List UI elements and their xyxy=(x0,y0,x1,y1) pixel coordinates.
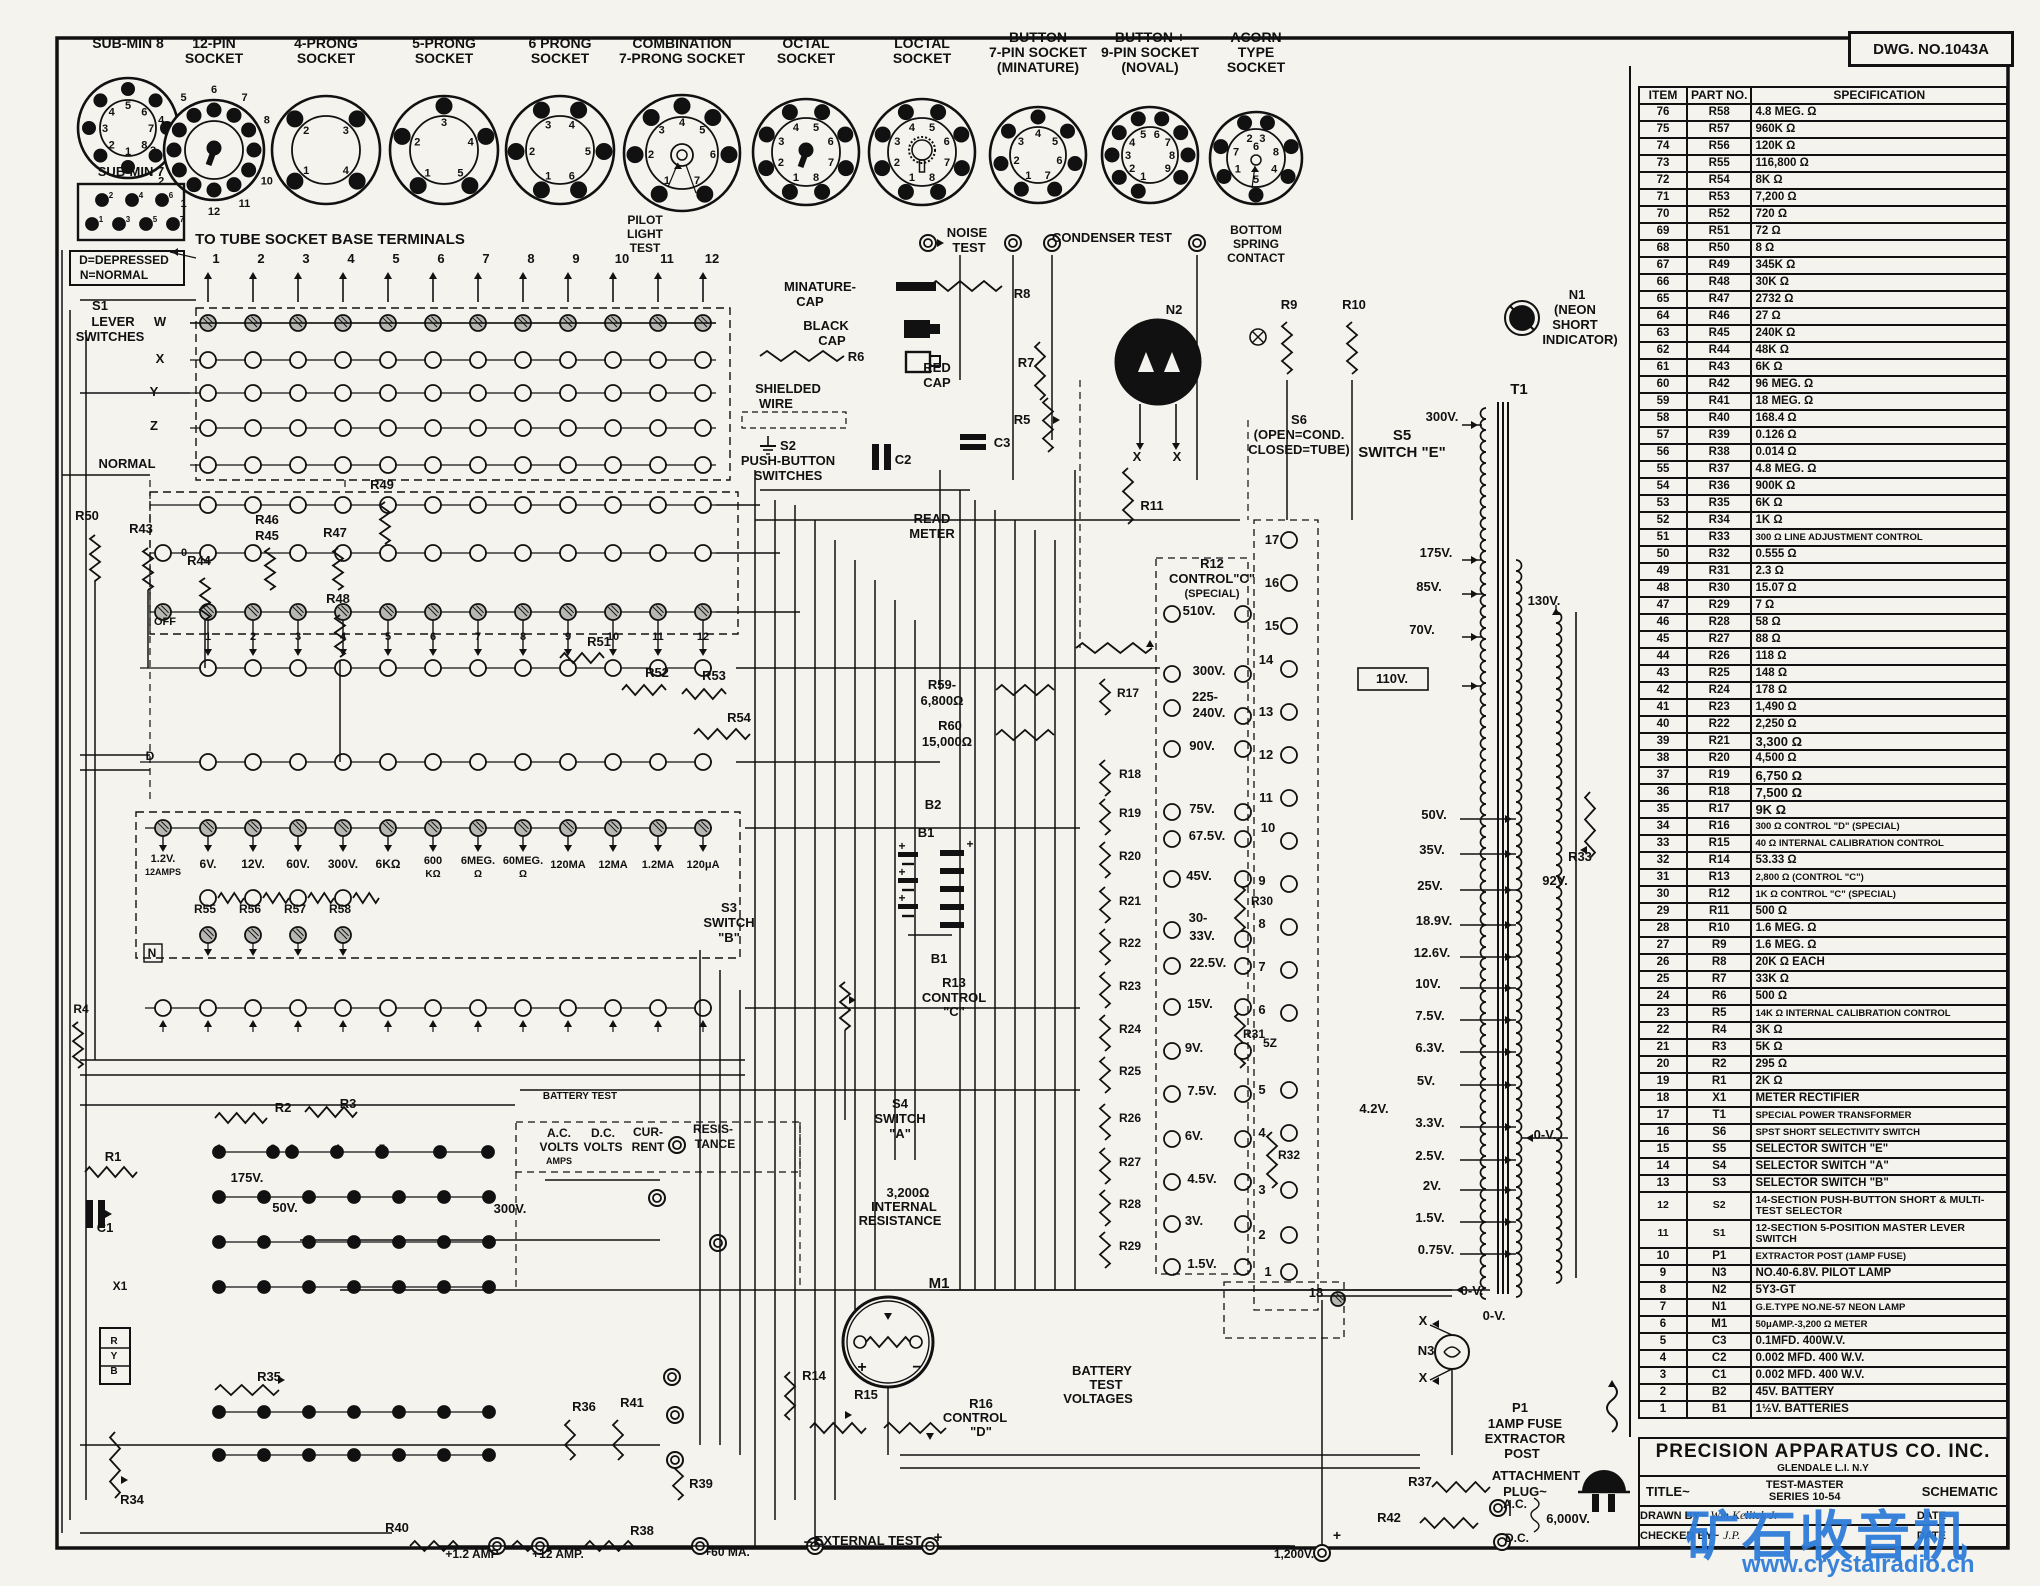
part-part: R49 xyxy=(1687,257,1751,274)
schematic-label: BOTTOM xyxy=(1230,223,1282,237)
schematic-label: S2 xyxy=(780,438,796,453)
part-item: 36 xyxy=(1639,784,1687,801)
part-spec: 48K Ω xyxy=(1751,342,2007,359)
schematic-label: + xyxy=(898,891,905,905)
part-part: R54 xyxy=(1687,172,1751,189)
schematic-label: 90V. xyxy=(1189,738,1215,753)
part-item: 12 xyxy=(1639,1192,1687,1220)
schematic-label: 8 xyxy=(527,251,534,266)
part-part: R8 xyxy=(1687,954,1751,971)
parts-table-row: 45R2788 Ω xyxy=(1639,631,2007,648)
schematic-label: SOCKET xyxy=(777,50,836,66)
parts-table: ITEM PART NO. SPECIFICATION 76R584.8 MEG… xyxy=(1638,86,2008,1419)
schematic-label: 10 xyxy=(615,251,629,266)
part-spec: 0.1MFD. 400W.V. xyxy=(1751,1333,2007,1350)
schematic-label: R14 xyxy=(802,1368,827,1383)
schematic-label: 8 xyxy=(1169,150,1175,162)
part-item: 9 xyxy=(1639,1265,1687,1282)
schematic-label: 6,000V. xyxy=(1546,1511,1590,1526)
parts-table-row: 18X1METER RECTIFIER xyxy=(1639,1090,2007,1107)
part-part: R28 xyxy=(1687,614,1751,631)
schematic-label: SOCKET xyxy=(1227,59,1286,75)
schematic-label: 15 xyxy=(1265,618,1279,633)
schematic-label: R12 xyxy=(1200,556,1224,571)
part-item: 7 xyxy=(1639,1299,1687,1316)
schematic-label: 5 xyxy=(153,215,158,224)
part-item: 72 xyxy=(1639,172,1687,189)
schematic-label: RESISTANCE xyxy=(859,1213,942,1228)
schematic-label: R18 xyxy=(1119,767,1141,781)
schematic-label: SUB-MIN 8 xyxy=(92,35,164,51)
part-part: R35 xyxy=(1687,495,1751,512)
part-spec: 0.002 MFD. 400 W.V. xyxy=(1751,1350,2007,1367)
schematic-label: 92V. xyxy=(1542,873,1568,888)
parts-table-row: 1B11½V. BATTERIES xyxy=(1639,1401,2007,1418)
schematic-label: 7 xyxy=(944,157,950,169)
schematic-label: 16 xyxy=(1265,575,1279,590)
schematic-label: 3 xyxy=(302,251,309,266)
part-part: X1 xyxy=(1687,1090,1751,1107)
parts-table-row: 40R222,250 Ω xyxy=(1639,716,2007,733)
schematic-label: R35 xyxy=(257,1369,281,1384)
schematic-label: BUTTON xyxy=(1009,29,1067,45)
schematic-label: 5-PRONG xyxy=(412,35,476,51)
schematic-label: 8 xyxy=(1258,916,1265,931)
schematic-label: R2 xyxy=(275,1100,292,1115)
schematic-label: CONDENSER TEST xyxy=(1052,230,1172,245)
part-item: 18 xyxy=(1639,1090,1687,1107)
schematic-label: CAP xyxy=(923,375,951,390)
part-item: 34 xyxy=(1639,818,1687,835)
part-item: 4 xyxy=(1639,1350,1687,1367)
part-part: R10 xyxy=(1687,920,1751,937)
part-spec: 53.33 Ω xyxy=(1751,852,2007,869)
part-part: R42 xyxy=(1687,376,1751,393)
part-part: R13 xyxy=(1687,869,1751,886)
schematic-label: 3 xyxy=(1125,150,1131,162)
schematic-label: 6 xyxy=(437,1144,444,1158)
schematic-label: R26 xyxy=(1119,1111,1141,1125)
part-part: N1 xyxy=(1687,1299,1751,1316)
part-item: 62 xyxy=(1639,342,1687,359)
schematic-label: COMBINATION xyxy=(632,35,731,51)
part-item: 15 xyxy=(1639,1141,1687,1158)
part-part: C3 xyxy=(1687,1333,1751,1350)
part-spec: 72 Ω xyxy=(1751,223,2007,240)
schematic-label: 2 xyxy=(250,631,256,643)
part-item: 35 xyxy=(1639,801,1687,818)
schematic-label: 2.5V. xyxy=(1415,1148,1444,1163)
part-spec: 9K Ω xyxy=(1751,801,2007,818)
schematic-label: C3 xyxy=(994,435,1011,450)
schematic-label: N3 xyxy=(1418,1343,1435,1358)
schematic-label: 1 xyxy=(1025,170,1031,182)
part-spec: 14K Ω INTERNAL CALIBRATION CONTROL xyxy=(1751,1005,2007,1022)
part-spec: 900K Ω xyxy=(1751,478,2007,495)
schematic-label: "B" xyxy=(718,930,740,945)
drawing-title: TEST-MASTER SERIES 10-54 xyxy=(1696,1479,1914,1503)
schematic-label: R17 xyxy=(1117,686,1139,700)
schematic-label: 9 xyxy=(1165,163,1171,175)
part-part: R58 xyxy=(1687,104,1751,121)
part-part: T1 xyxy=(1687,1107,1751,1124)
schematic-label: 5Z xyxy=(1263,1036,1277,1050)
schematic-label: R21 xyxy=(1119,894,1141,908)
schematic-label: 2 xyxy=(529,146,535,158)
schematic-label: SHIELDED xyxy=(755,381,821,396)
schematic-label: LIGHT xyxy=(627,227,664,241)
part-spec: 0.014 Ω xyxy=(1751,444,2007,461)
schematic-label: 33V. xyxy=(1189,928,1215,943)
part-part: R39 xyxy=(1687,427,1751,444)
schematic-label: 6 xyxy=(944,136,950,148)
parts-table-row: 60R4296 MEG. Ω xyxy=(1639,376,2007,393)
part-part: P1 xyxy=(1687,1248,1751,1265)
part-item: 47 xyxy=(1639,597,1687,614)
parts-table-row: 43R25148 Ω xyxy=(1639,665,2007,682)
part-item: 52 xyxy=(1639,512,1687,529)
parts-table-row: 47R297 Ω xyxy=(1639,597,2007,614)
part-spec: 0.555 Ω xyxy=(1751,546,2007,563)
schematic-label: 12-PIN xyxy=(192,35,236,51)
part-spec: 345K Ω xyxy=(1751,257,2007,274)
schematic-label: (MINATURE) xyxy=(997,59,1079,75)
schematic-label: R9 xyxy=(1281,297,1298,312)
schematic-label: R58 xyxy=(329,902,351,916)
schematic-label: 600 xyxy=(424,855,442,867)
part-spec: METER RECTIFIER xyxy=(1751,1090,2007,1107)
schematic-label: 11 xyxy=(652,631,664,643)
part-spec: 1.6 MEG. Ω xyxy=(1751,937,2007,954)
col-part: PART NO. xyxy=(1687,87,1751,104)
schematic-label: 6V. xyxy=(1185,1128,1203,1143)
schematic-label: B xyxy=(110,1366,117,1377)
schematic-label: 7 xyxy=(485,1144,492,1158)
part-spec: 4.8 MEG. Ω xyxy=(1751,104,2007,121)
schematic-label: R1 xyxy=(105,1149,122,1164)
schematic-label: 1 xyxy=(99,215,104,224)
schematic-label: R59- xyxy=(928,677,956,692)
parts-table-row: 12S214-SECTION PUSH-BUTTON SHORT & MULTI… xyxy=(1639,1192,2007,1220)
schematic-label: SOCKET xyxy=(297,50,356,66)
schematic-label: 8 xyxy=(264,115,270,127)
schematic-label: 11 xyxy=(1259,790,1273,805)
part-spec: 50μAMP.-3,200 Ω METER xyxy=(1751,1316,2007,1333)
schematic-label: 4 xyxy=(343,165,350,177)
parts-table-row: 65R472732 Ω xyxy=(1639,291,2007,308)
schematic-label: R xyxy=(110,1336,118,1347)
title-block: PRECISION APPARATUS CO. INC. GLENDALE L.… xyxy=(1638,1437,2008,1548)
schematic-label: 9V. xyxy=(1185,1040,1203,1055)
schematic-label: TO TUBE SOCKET BASE TERMINALS xyxy=(195,231,465,248)
part-spec: 27 Ω xyxy=(1751,308,2007,325)
schematic-label: R60 xyxy=(938,718,962,733)
part-item: 6 xyxy=(1639,1316,1687,1333)
schematic-label: R27 xyxy=(1119,1155,1141,1169)
part-item: 30 xyxy=(1639,886,1687,903)
parts-table-row: 24R6500 Ω xyxy=(1639,988,2007,1005)
schematic-label: 2 xyxy=(109,191,114,200)
schematic-label: R42 xyxy=(1377,1510,1401,1525)
schematic-label: R22 xyxy=(1119,936,1141,950)
schematic-label: LOCTAL xyxy=(894,35,950,51)
part-part: R11 xyxy=(1687,903,1751,920)
part-item: 65 xyxy=(1639,291,1687,308)
schematic-label: 1 xyxy=(205,631,211,643)
schematic-label: 7 xyxy=(180,215,185,224)
part-item: 64 xyxy=(1639,308,1687,325)
schematic-label: 1 xyxy=(212,251,219,266)
schematic-label: R57 xyxy=(284,902,306,916)
schematic-label: X xyxy=(1419,1370,1428,1385)
schematic-label: 4 xyxy=(569,120,576,132)
schematic-label: 4.5V. xyxy=(1187,1171,1216,1186)
parts-table-row: 42R24178 Ω xyxy=(1639,682,2007,699)
schematic-label: 7 xyxy=(241,92,247,104)
schematic-label: R40 xyxy=(385,1520,409,1535)
parts-table-row: 7N1G.E.TYPE NO.NE-57 NEON LAMP xyxy=(1639,1299,2007,1316)
part-part: S5 xyxy=(1687,1141,1751,1158)
schematic-label: R37 xyxy=(1408,1474,1432,1489)
part-item: 49 xyxy=(1639,563,1687,580)
part-item: 44 xyxy=(1639,648,1687,665)
schematic-label: 15,000Ω xyxy=(922,734,972,749)
part-spec: 30K Ω xyxy=(1751,274,2007,291)
schematic-label: NORMAL xyxy=(98,456,155,471)
schematic-label: READ xyxy=(914,511,951,526)
part-part: C1 xyxy=(1687,1367,1751,1384)
parts-table-row: 3C10.002 MFD. 400 W.V. xyxy=(1639,1367,2007,1384)
schematic-label: Y xyxy=(111,1351,118,1362)
schematic-label: N xyxy=(148,946,157,960)
parts-table-row: 32R1453.33 Ω xyxy=(1639,852,2007,869)
schematic-label: SWITCHES xyxy=(754,468,823,483)
part-spec: SELECTOR SWITCH "A" xyxy=(1751,1158,2007,1175)
schematic-label: 3 xyxy=(1018,136,1024,148)
schematic-label: 300V. xyxy=(1426,409,1459,424)
company-name: PRECISION APPARATUS CO. INC. xyxy=(1640,1439,2006,1463)
schematic-label: 5 xyxy=(379,1142,386,1156)
schematic-label: + xyxy=(898,839,905,853)
part-spec: 2K Ω xyxy=(1751,1073,2007,1090)
part-spec: SELECTOR SWITCH "B" xyxy=(1751,1175,2007,1192)
part-spec: 7,500 Ω xyxy=(1751,784,2007,801)
schematic-label: 12V. xyxy=(241,857,265,871)
schematic-label: S3 xyxy=(721,900,737,915)
schematic-label: − xyxy=(912,1359,921,1376)
part-spec: 5K Ω xyxy=(1751,1039,2007,1056)
schematic-label: 4.2V. xyxy=(1359,1101,1388,1116)
schematic-label: C1 xyxy=(97,1220,114,1235)
part-item: 42 xyxy=(1639,682,1687,699)
part-part: R7 xyxy=(1687,971,1751,988)
part-part: R5 xyxy=(1687,1005,1751,1022)
part-spec: 0.126 Ω xyxy=(1751,427,2007,444)
schematic-label: R24 xyxy=(1119,1022,1141,1036)
schematic-label: 2V. xyxy=(1423,1178,1441,1193)
schematic-label: 4 xyxy=(909,122,916,134)
schematic-label: A.C. xyxy=(547,1126,571,1140)
schematic-label: 1 xyxy=(125,146,131,158)
schematic-label: 10V. xyxy=(1415,976,1441,991)
schematic-label: 5 xyxy=(585,146,591,158)
schematic-page: SUB-MIN 85678123412-PINSOCKET67891011121… xyxy=(0,0,2040,1586)
schematic-label: 175V. xyxy=(1420,545,1453,560)
schematic-label: RESIS- xyxy=(693,1122,733,1136)
schematic-label: X xyxy=(1133,449,1142,464)
part-spec: SPST SHORT SELECTIVITY SWITCH xyxy=(1751,1124,2007,1141)
schematic-label: SOCKET xyxy=(893,50,952,66)
part-item: 58 xyxy=(1639,410,1687,427)
schematic-label: 7 xyxy=(828,157,834,169)
schematic-label: 2 xyxy=(1246,133,1252,145)
parts-table-row: 62R4448K Ω xyxy=(1639,342,2007,359)
schematic-label: 1 xyxy=(424,168,430,180)
schematic-label: 1 xyxy=(303,165,309,177)
parts-table-row: 2B245V. BATTERY xyxy=(1639,1384,2007,1401)
schematic-label: S1 xyxy=(92,298,108,313)
schematic-label: CONTROL"C" xyxy=(1169,571,1255,586)
schematic-label: 67.5V. xyxy=(1189,828,1225,843)
schematic-label: 60MEG. xyxy=(503,855,543,867)
schematic-label: T1 xyxy=(1510,381,1528,398)
schematic-label: R38 xyxy=(630,1523,654,1538)
parts-table-header: ITEM PART NO. SPECIFICATION xyxy=(1639,87,2007,104)
schematic-label: 4 xyxy=(1035,128,1042,140)
schematic-label: EXTERNAL TEST xyxy=(815,1533,922,1548)
part-spec: 6K Ω xyxy=(1751,495,2007,512)
part-spec: 6K Ω xyxy=(1751,359,2007,376)
schematic-label: R39 xyxy=(689,1476,713,1491)
schematic-label: 12 xyxy=(1259,747,1273,762)
parts-table-row: 63R45240K Ω xyxy=(1639,325,2007,342)
schematic-label: R33 xyxy=(1568,849,1592,864)
schematic-label: 7 xyxy=(1233,147,1239,159)
schematic-label: 5 xyxy=(699,125,705,137)
schematic-label: + xyxy=(898,865,905,879)
part-spec: 500 Ω xyxy=(1751,903,2007,920)
parts-table-row: 31R132,800 Ω (CONTROL "C") xyxy=(1639,869,2007,886)
part-spec: 1K Ω CONTROL "C" (SPECIAL) xyxy=(1751,886,2007,903)
schematic-label: 8 xyxy=(520,631,526,643)
parts-table-row: 10P1EXTRACTOR POST (1AMP FUSE) xyxy=(1639,1248,2007,1265)
part-part: R51 xyxy=(1687,223,1751,240)
schematic-label: R19 xyxy=(1119,806,1141,820)
schematic-label: B1 xyxy=(918,825,935,840)
schematic-label: 85V. xyxy=(1416,579,1442,594)
schematic-label: 4 xyxy=(340,631,347,643)
part-item: 54 xyxy=(1639,478,1687,495)
parts-table-row: 22R43K Ω xyxy=(1639,1022,2007,1039)
part-part: R19 xyxy=(1687,767,1751,784)
part-part: N3 xyxy=(1687,1265,1751,1282)
part-part: S1 xyxy=(1687,1220,1751,1248)
schematic-label: WIRE xyxy=(759,396,793,411)
part-part: R41 xyxy=(1687,393,1751,410)
part-part: R52 xyxy=(1687,206,1751,223)
schematic-label: R20 xyxy=(1119,849,1141,863)
parts-table-row: 57R390.126 Ω xyxy=(1639,427,2007,444)
part-item: 39 xyxy=(1639,733,1687,750)
part-spec: 8K Ω xyxy=(1751,172,2007,189)
parts-table-row: 56R380.014 Ω xyxy=(1639,444,2007,461)
part-part: S2 xyxy=(1687,1192,1751,1220)
part-item: 19 xyxy=(1639,1073,1687,1090)
schematic-label: R13 xyxy=(942,975,966,990)
parts-table-row: 20R2295 Ω xyxy=(1639,1056,2007,1073)
schematic-label: 6 xyxy=(1056,155,1062,167)
schematic-label: Z xyxy=(150,418,158,433)
part-part: R6 xyxy=(1687,988,1751,1005)
schematic-label: TYPE xyxy=(1238,44,1275,60)
part-spec: 960K Ω xyxy=(1751,121,2007,138)
schematic-label: TEST xyxy=(952,240,985,255)
part-item: 33 xyxy=(1639,835,1687,852)
schematic-label: X1 xyxy=(113,1279,128,1293)
schematic-label: KΩ xyxy=(425,869,440,880)
part-item: 20 xyxy=(1639,1056,1687,1073)
schematic-label: R11 xyxy=(1140,498,1163,513)
schematic-label: 1,200V. xyxy=(1274,1547,1314,1561)
schematic-label: CONTACT xyxy=(1227,251,1285,265)
schematic-label: 3 xyxy=(545,120,551,132)
schematic-label: R32 xyxy=(1278,1148,1300,1162)
parts-table-row: 11S112-SECTION 5-POSITION MASTER LEVER S… xyxy=(1639,1220,2007,1248)
part-spec: 1K Ω xyxy=(1751,512,2007,529)
part-spec: 118 Ω xyxy=(1751,648,2007,665)
part-spec: 7,200 Ω xyxy=(1751,189,2007,206)
schematic-label: 8 xyxy=(1273,147,1279,159)
schematic-label: 2 xyxy=(109,139,115,151)
col-spec: SPECIFICATION xyxy=(1751,87,2007,104)
title-label: TITLE~ xyxy=(1640,1484,1696,1499)
part-part: R26 xyxy=(1687,648,1751,665)
schematic-label: 3 xyxy=(1258,1182,1265,1197)
part-item: 69 xyxy=(1639,223,1687,240)
schematic-label: 7-PRONG SOCKET xyxy=(619,50,745,66)
part-part: R22 xyxy=(1687,716,1751,733)
schematic-label: +60 MA. xyxy=(704,1545,750,1559)
part-item: 76 xyxy=(1639,104,1687,121)
parts-table-row: 38R204,500 Ω xyxy=(1639,750,2007,767)
part-item: 13 xyxy=(1639,1175,1687,1192)
schematic-label: 12.6V. xyxy=(1414,945,1450,960)
part-part: R4 xyxy=(1687,1022,1751,1039)
part-item: 23 xyxy=(1639,1005,1687,1022)
schematic-label: 0-V. xyxy=(1534,1127,1557,1142)
schematic-label: SWITCH "E" xyxy=(1358,444,1446,461)
schematic-label: (OPEN=COND. xyxy=(1254,427,1345,442)
parts-table-row: 8N25Y3-GT xyxy=(1639,1282,2007,1299)
part-part: R2 xyxy=(1687,1056,1751,1073)
schematic-label: CONTROL xyxy=(943,1410,1007,1425)
schematic-label: 8 xyxy=(929,172,935,184)
schematic-label: 5 xyxy=(180,92,186,104)
part-part: R53 xyxy=(1687,189,1751,206)
schematic-label: + xyxy=(966,837,973,851)
schematic-label: R25 xyxy=(1119,1064,1141,1078)
schematic-label: P1 xyxy=(1512,1400,1528,1415)
part-part: R45 xyxy=(1687,325,1751,342)
part-spec: 15.07 Ω xyxy=(1751,580,2007,597)
parts-table-row: 26R820K Ω EACH xyxy=(1639,954,2007,971)
schematic-label: 7 xyxy=(1165,137,1171,149)
schematic-label: 1AMP FUSE xyxy=(1488,1416,1562,1431)
schematic-label: 12AMPS xyxy=(145,867,181,877)
schematic-label: 7 xyxy=(475,631,481,643)
schematic-label: 6 xyxy=(569,170,575,182)
part-spec: 7 Ω xyxy=(1751,597,2007,614)
